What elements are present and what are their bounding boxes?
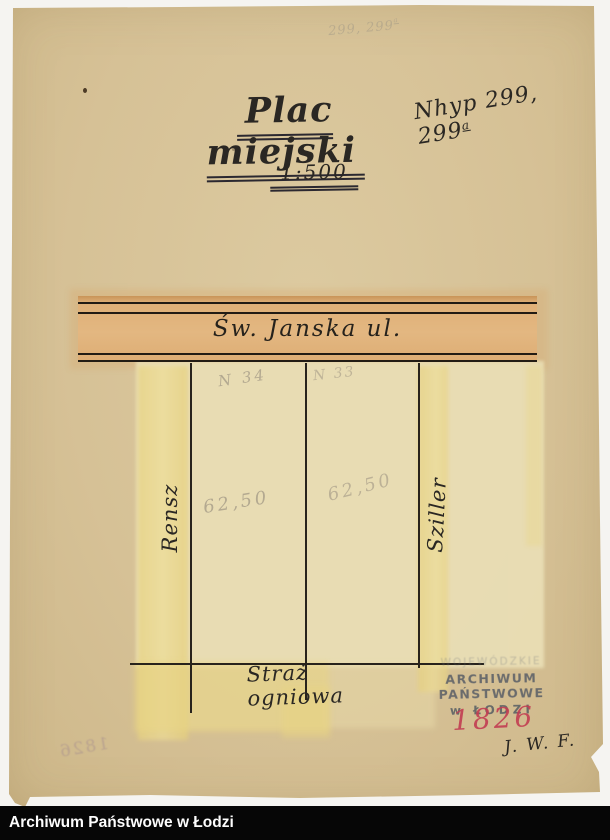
street-band-line bbox=[78, 302, 537, 304]
street-band-line bbox=[78, 360, 537, 362]
pencil-note-superscript: a bbox=[393, 15, 399, 24]
hyp-number-superscript: a bbox=[461, 118, 471, 133]
pencil-note-text: 299, 299 bbox=[328, 18, 395, 39]
pencil-note-top: 299, 299a bbox=[327, 15, 399, 39]
street-band: Św. Janska ul. bbox=[78, 296, 537, 362]
surveyor-initials: J. W. F. bbox=[503, 730, 577, 757]
hyp-number-annotation: Nhyp 299, 299a bbox=[412, 72, 598, 150]
street-band-line bbox=[78, 312, 537, 314]
boundary-line-middle bbox=[305, 363, 307, 700]
boundary-line-left bbox=[190, 363, 192, 713]
hyp-number-text: Nhyp 299, 299 bbox=[412, 81, 539, 150]
archive-caption-bar: Archiwum Państwowe w Łodzi bbox=[0, 806, 610, 840]
paper-sheet: 299, 299a Plac miejski Nhyp 299, 299a 1:… bbox=[0, 0, 610, 812]
scale-label: 1:500 bbox=[258, 159, 370, 185]
street-name-label: Św. Janska ul. bbox=[78, 316, 537, 342]
bleedthrough-number: 1826 bbox=[57, 734, 111, 763]
stamp-line-2: ARCHIWUM PAŃSTWOWE bbox=[404, 669, 579, 702]
plan-ground bbox=[136, 361, 544, 668]
inventory-number: 1826 bbox=[451, 700, 536, 737]
owner-name-left: Rensz bbox=[158, 468, 182, 568]
street-band-line bbox=[78, 353, 537, 355]
caption-text: Archiwum Państwowe w Łodzi bbox=[9, 806, 234, 840]
paper-speck bbox=[83, 88, 87, 93]
watercolor-wash-far-right bbox=[526, 366, 542, 546]
fire-station-label: Straż ogniowa bbox=[246, 657, 398, 710]
scale-text: 1:500 bbox=[270, 159, 358, 192]
boundary-line-right bbox=[418, 363, 420, 668]
stamp-line-1: WOJEWÓDZKIE bbox=[403, 654, 578, 669]
